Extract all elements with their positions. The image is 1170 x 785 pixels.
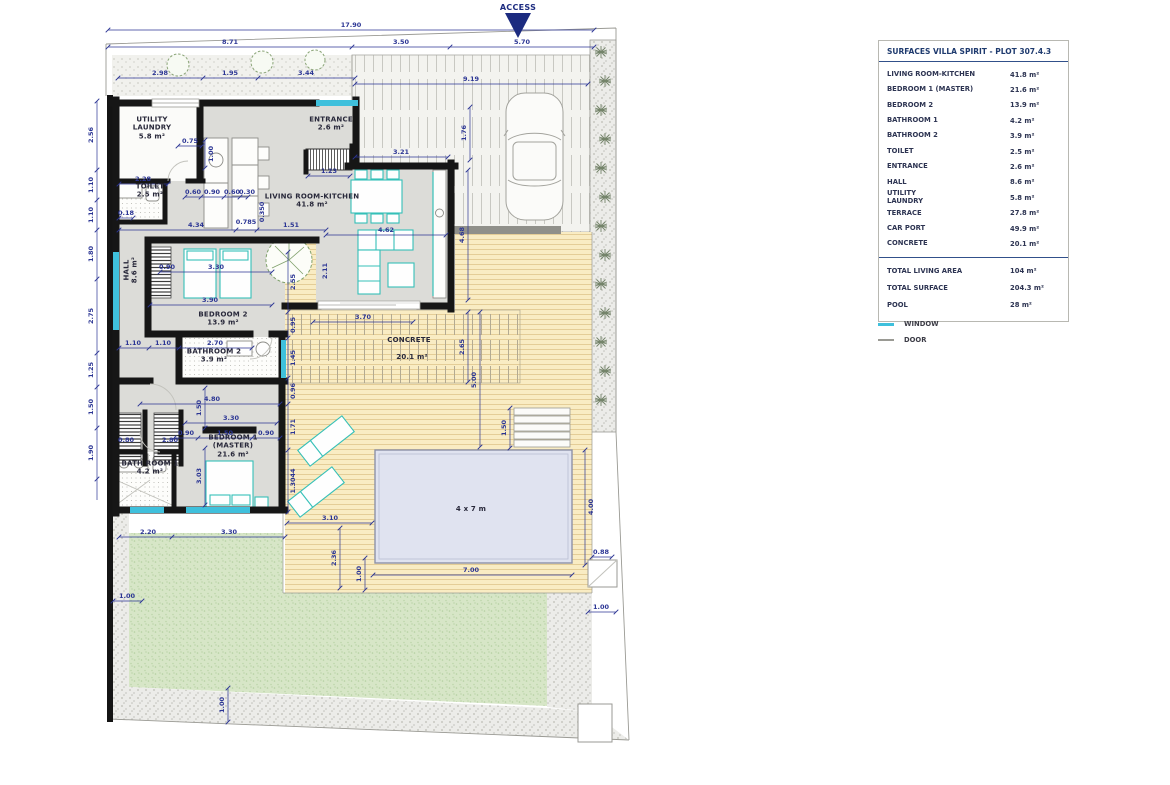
surface-row-label: BEDROOM 1 (MASTER)	[887, 86, 1010, 94]
surface-row-label: HALL	[887, 179, 1010, 187]
dining-set	[351, 170, 402, 223]
plot-wall	[107, 95, 113, 722]
surface-row-value: 8.6 m²	[1010, 178, 1060, 186]
surface-row-value: 49.9 m²	[1010, 225, 1060, 233]
plant-icon	[599, 133, 611, 145]
surface-row-value: 5.8 m²	[1010, 194, 1060, 202]
surface-row: TOILET2.5 m²	[887, 144, 1060, 159]
plant-icon	[595, 336, 607, 348]
surface-row-label: CAR PORT	[887, 225, 1010, 233]
surface-row-label: POOL	[887, 302, 1010, 310]
surface-row: BATHROOM 23.9 m²	[887, 129, 1060, 144]
surface-row-label: CONCRETE	[887, 240, 1010, 248]
surface-row-value: 41.8 m²	[1010, 71, 1060, 79]
legend-door-label: DOOR	[904, 336, 926, 344]
door-swatch-icon	[878, 339, 894, 341]
surface-row-value: 204.3 m²	[1010, 284, 1060, 292]
plant-icon	[599, 75, 611, 87]
surface-row: BEDROOM 1 (MASTER)21.6 m²	[887, 82, 1060, 97]
plant-icon	[599, 191, 611, 203]
plant-icon	[599, 249, 611, 261]
surface-row: BATHROOM 14.2 m²	[887, 113, 1060, 128]
surfaces-table: SURFACES VILLA SPIRIT - PLOT 307.4.3 LIV…	[878, 40, 1069, 322]
terrace-deck	[455, 232, 592, 310]
surface-row-label: UTILITYLAUNDRY	[887, 190, 1010, 206]
surface-row-label: BATHROOM 2	[887, 132, 1010, 140]
surface-row-label: TOILET	[887, 148, 1010, 156]
surface-totals: TOTAL LIVING AREA104 m²TOTAL SURFACE204.…	[879, 257, 1068, 321]
plant-icon	[595, 162, 607, 174]
plant-icon	[599, 307, 611, 319]
concrete-area	[288, 310, 520, 383]
surface-row: CONCRETE20.1 m²	[887, 237, 1060, 252]
surface-row: UTILITYLAUNDRY5.8 m²	[887, 190, 1060, 206]
surface-row-label: BATHROOM 1	[887, 117, 1010, 125]
surface-rows: LIVING ROOM-KITCHEN41.8 m²BEDROOM 1 (MAS…	[879, 62, 1068, 254]
surface-row-value: 20.1 m²	[1010, 240, 1060, 248]
table-title: SURFACES VILLA SPIRIT - PLOT 307.4.3	[879, 41, 1068, 62]
plant-icon	[595, 394, 607, 406]
plant-icon	[595, 278, 607, 290]
surface-row: ENTRANCE2.6 m²	[887, 159, 1060, 174]
pool	[375, 450, 572, 563]
terrace-tree	[266, 237, 312, 283]
surface-row: CAR PORT49.9 m²	[887, 221, 1060, 236]
plant-icon	[595, 104, 607, 116]
surface-row-value: 28 m²	[1010, 301, 1060, 309]
surface-row-label: TOTAL SURFACE	[887, 285, 1010, 293]
access-label: ACCESS	[492, 3, 544, 12]
pool-steps	[514, 408, 570, 447]
deck-box	[588, 560, 617, 587]
window-frame	[152, 99, 199, 107]
surface-row: TERRACE27.8 m²	[887, 206, 1060, 221]
surface-row-label: BEDROOM 2	[887, 102, 1010, 110]
surface-row: LIVING ROOM-KITCHEN41.8 m²	[887, 67, 1060, 82]
surface-row-label: LIVING ROOM-KITCHEN	[887, 71, 1010, 79]
surface-row-value: 2.6 m²	[1010, 163, 1060, 171]
plant-icon	[599, 365, 611, 377]
surface-row-value: 2.5 m²	[1010, 148, 1060, 156]
sliding-door	[318, 301, 420, 309]
plant-icon	[595, 220, 607, 232]
surface-row: TOTAL SURFACE204.3 m²	[887, 280, 1060, 297]
surface-row: TOTAL LIVING AREA104 m²	[887, 263, 1060, 280]
window-swatch-icon	[878, 323, 894, 326]
surface-row-value: 4.2 m²	[1010, 117, 1060, 125]
surface-row: BEDROOM 213.9 m²	[887, 98, 1060, 113]
surface-row-value: 3.9 m²	[1010, 132, 1060, 140]
surface-row: POOL28 m²	[887, 297, 1060, 314]
access-arrow-icon	[505, 13, 531, 38]
plant-icon	[595, 46, 607, 58]
surface-row: HALL8.6 m²	[887, 175, 1060, 190]
legend: WINDOW DOOR	[878, 316, 939, 348]
surface-row-value: 13.9 m²	[1010, 101, 1060, 109]
surface-row-label: TERRACE	[887, 210, 1010, 218]
legend-window-label: WINDOW	[904, 320, 939, 328]
legend-door: DOOR	[878, 332, 939, 348]
surface-row-label: TOTAL LIVING AREA	[887, 268, 1010, 276]
legend-window: WINDOW	[878, 316, 939, 332]
surface-row-value: 27.8 m²	[1010, 209, 1060, 217]
corner-box	[578, 704, 612, 742]
surface-row-label: ENTRANCE	[887, 163, 1010, 171]
access-marker: ACCESS	[492, 3, 544, 38]
car	[504, 93, 565, 220]
blueprint-page: 17.908.713.505.702.981.953.449.191.763.2…	[0, 0, 1170, 785]
surface-row-value: 21.6 m²	[1010, 86, 1060, 94]
surface-row-value: 104 m²	[1010, 267, 1060, 275]
